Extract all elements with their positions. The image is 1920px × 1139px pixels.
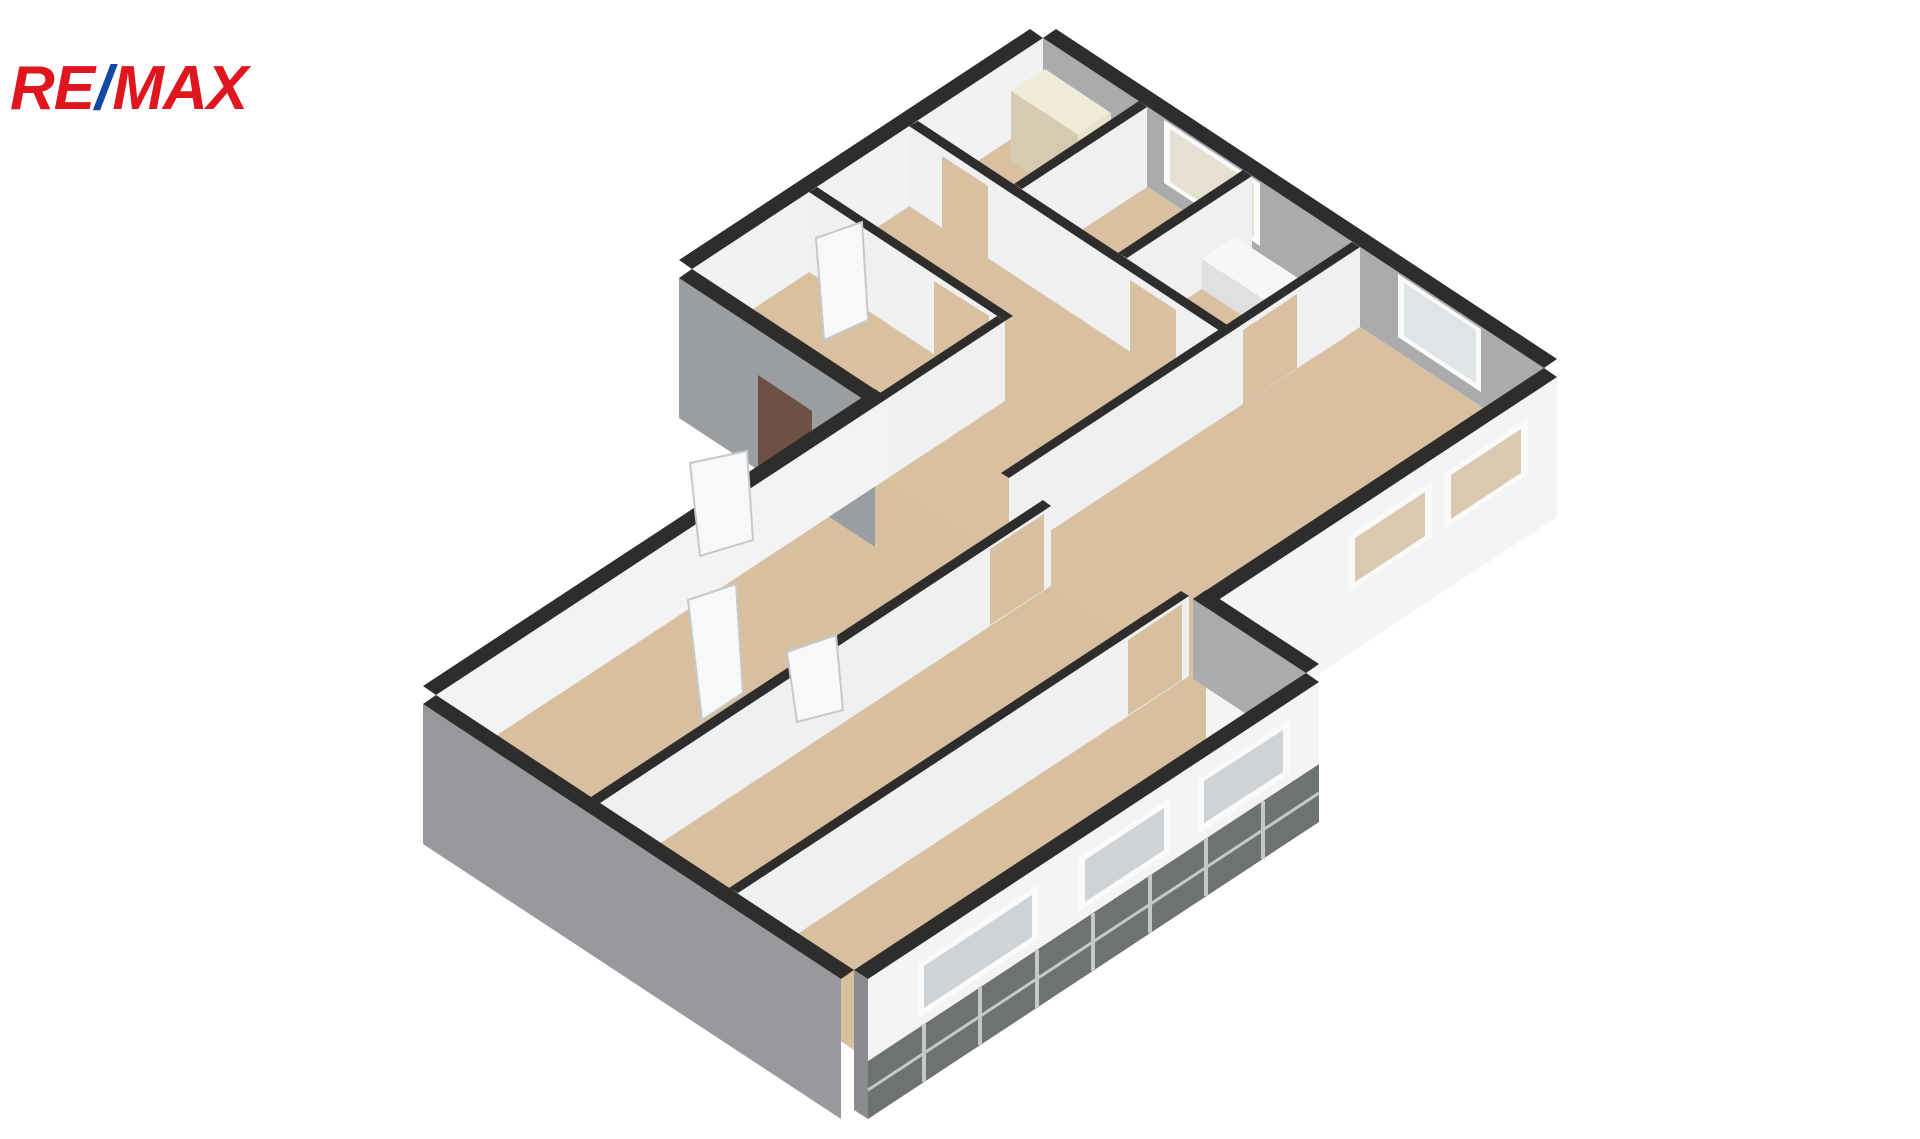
facade-end-edge [854,970,868,1119]
door-panel-entry [816,222,868,340]
door-panel-room-b [787,635,843,722]
floor-plan-svg [0,0,1920,1139]
page: RE/MAX [0,0,1920,1139]
door-panel-outside [690,451,753,556]
